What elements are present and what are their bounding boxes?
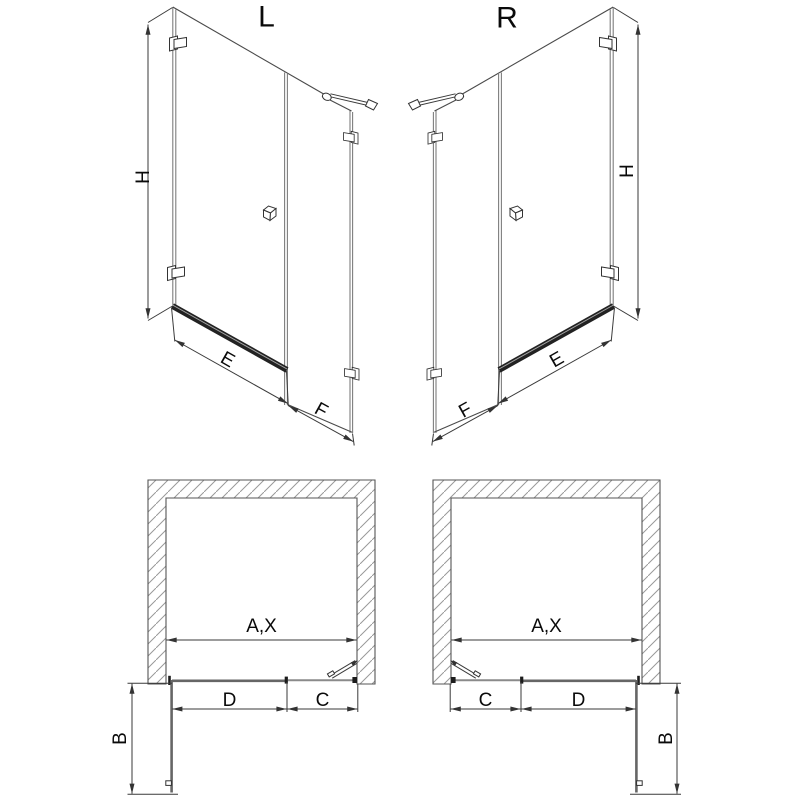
dim-label-c-right-plan: C (479, 690, 493, 711)
fixed-panel-left (288, 92, 378, 433)
dimension-c-left-plan: C (287, 684, 357, 712)
door-handle-knob (510, 206, 523, 221)
dimension-c-right-plan: C (450, 684, 520, 712)
glass-clamp-icon (345, 367, 359, 380)
dim-label-d-left-plan: D (223, 690, 237, 711)
left-plan-view: A,X D C B (110, 480, 375, 794)
dim-label-door-right: E (546, 348, 567, 373)
dimension-height-left: H (133, 8, 173, 321)
fixed-panel-right (409, 92, 499, 433)
hinge-icon (602, 266, 619, 281)
diagram-svg: L H (0, 0, 800, 800)
glass-clamp-icon (427, 367, 441, 380)
left-elevation-drawing: L H (133, 1, 378, 446)
support-bar-bracket (366, 100, 378, 111)
door-panel-left (168, 7, 329, 405)
support-bar-clamp (473, 671, 480, 677)
hinge-icon (168, 266, 185, 281)
dim-label-b-left-plan: B (110, 732, 131, 745)
dimension-d-left-plan: D (172, 682, 287, 712)
glass-clamp-icon (344, 131, 358, 144)
right-elevation-drawing: R H (409, 2, 639, 446)
shower-door-technical-diagram: L H (0, 0, 800, 800)
dim-label-c-left-plan: C (316, 690, 330, 711)
dim-label-panel-left: F (311, 399, 331, 423)
right-plan-view: A,X C D B (433, 480, 681, 794)
dim-label-d-right-plan: D (572, 690, 586, 711)
dimension-door-left: E (172, 308, 289, 407)
dim-label-panel-right: F (455, 399, 475, 423)
dimension-panel-right: F (432, 399, 498, 446)
dimension-opening-left-plan: A,X (167, 616, 357, 640)
support-bar-bracket (409, 100, 421, 111)
door-assembly-left-plan (166, 660, 358, 792)
wall-hatching (433, 480, 660, 684)
door-panel-right (458, 7, 619, 405)
variant-label-right: R (496, 2, 518, 35)
door-assembly-right-plan (450, 660, 642, 792)
support-bar-clamp (327, 671, 334, 677)
dim-label-opening-left-plan: A,X (246, 616, 277, 637)
dim-label-b-right-plan: B (656, 732, 677, 745)
hinge-icon (170, 36, 187, 51)
dimension-opening-right-plan: A,X (452, 616, 642, 640)
dim-label-height-left: H (133, 170, 154, 184)
dim-label-opening-right-plan: A,X (531, 616, 562, 637)
open-door-handle (637, 781, 643, 786)
variant-label-left: L (258, 1, 275, 34)
dimension-panel-left: F (289, 399, 355, 446)
wall-hatching (148, 480, 375, 684)
dim-label-door-left: E (217, 348, 238, 373)
open-door-handle (166, 781, 172, 786)
dimension-d-right-plan: D (521, 682, 636, 712)
hinge-icon (600, 36, 617, 51)
dimension-b-left-plan: B (110, 683, 178, 794)
dim-label-height-right: H (617, 164, 638, 178)
dimension-door-right: E (498, 308, 615, 407)
glass-clamp-icon (428, 131, 442, 144)
door-handle-knob (264, 206, 277, 221)
